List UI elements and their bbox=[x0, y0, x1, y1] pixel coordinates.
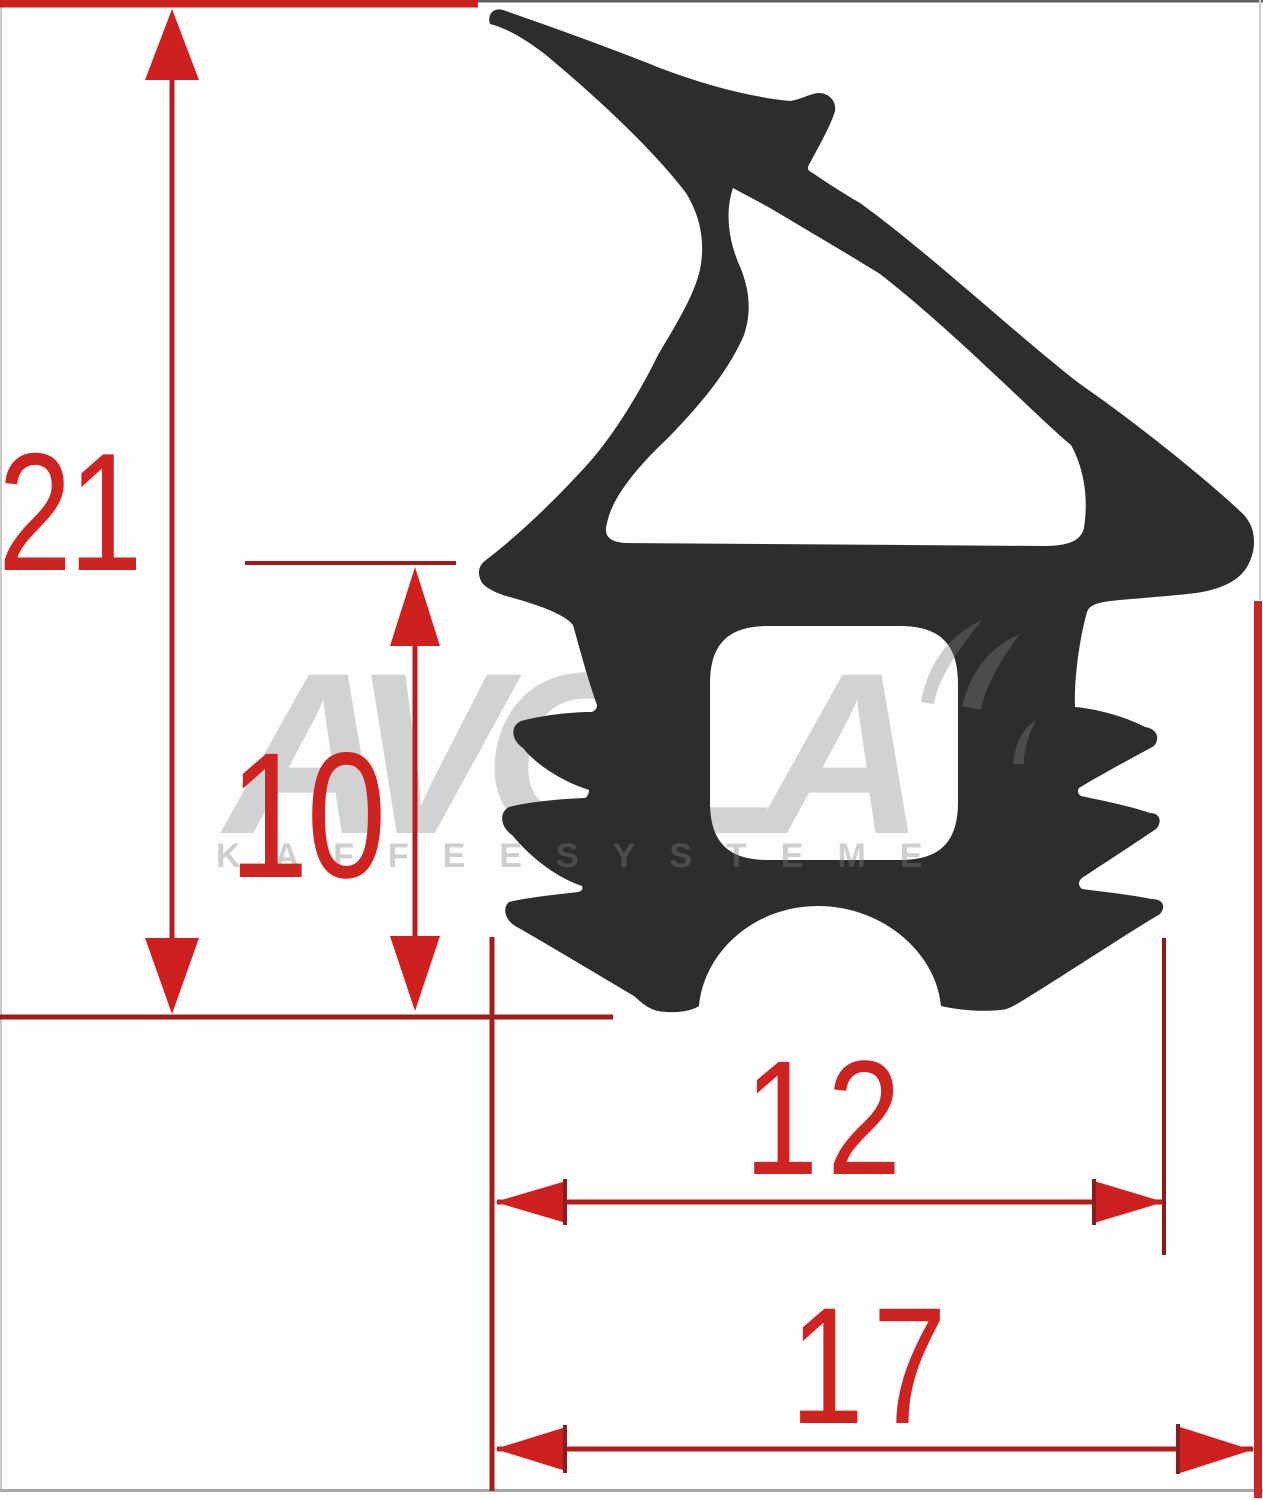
svg-text:12: 12 bbox=[744, 1026, 910, 1209]
svg-text:10: 10 bbox=[229, 716, 384, 916]
svg-text:17: 17 bbox=[790, 1273, 955, 1459]
svg-text:21: 21 bbox=[0, 419, 139, 607]
